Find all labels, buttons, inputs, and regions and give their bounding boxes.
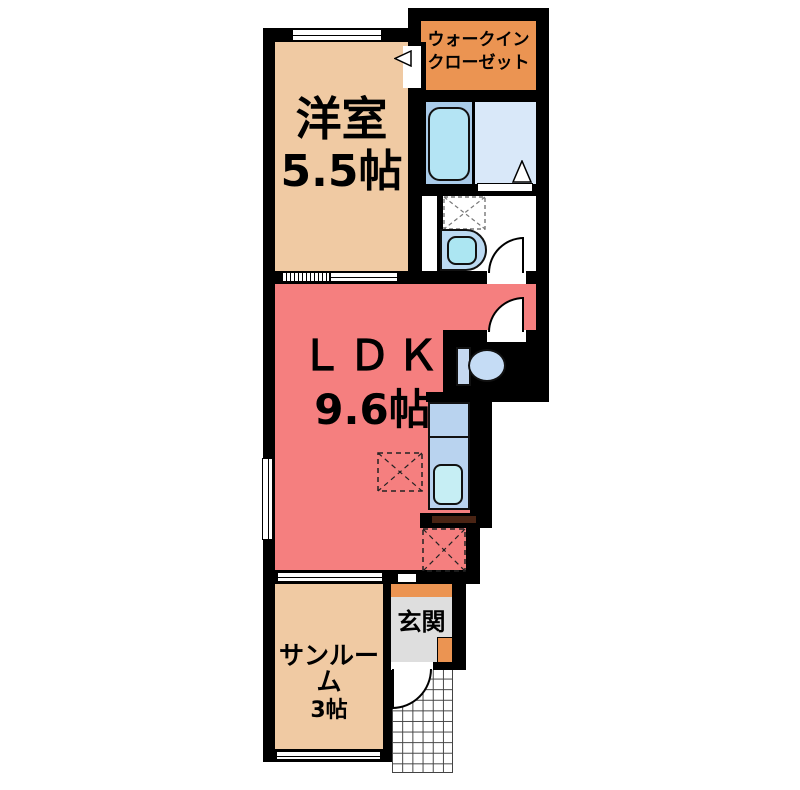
bathtub-icon xyxy=(428,107,470,181)
wall-opening xyxy=(398,574,416,582)
bath-sliding-door xyxy=(477,183,533,192)
window xyxy=(292,29,382,41)
window xyxy=(276,751,381,760)
bath-entry-arrow-icon xyxy=(512,160,532,183)
floor-plan: 洋室 5.5帖 ＬＤＫ 9.6帖 サンルーム 3帖 玄関 ウォークイン クローゼ… xyxy=(0,0,800,790)
walk-in-closet-name-line2: クローゼット xyxy=(421,52,536,75)
entrance-right-wall xyxy=(452,584,466,670)
room-western-name: 洋室 xyxy=(275,95,408,143)
window xyxy=(262,458,273,540)
sunroom-size: 3帖 xyxy=(273,699,385,722)
sliding-partition xyxy=(281,272,330,282)
closet-block-wall xyxy=(408,90,549,102)
sliding-partition xyxy=(330,272,398,282)
kitchen-counter-divider xyxy=(428,436,470,438)
kitchen-range-bar xyxy=(432,516,476,523)
walk-in-closet-name-line1: ウォークイン xyxy=(421,29,536,52)
refrigerator-space-icon xyxy=(422,528,466,572)
walk-in-closet-label: ウォークイン クローゼット xyxy=(421,29,536,75)
closet-block-wall xyxy=(408,8,549,21)
washbasin-bowl-icon xyxy=(447,236,477,265)
appliance-space-icon xyxy=(377,452,423,492)
room-western-label: 洋室 5.5帖 xyxy=(275,95,408,195)
sunroom-name: サンルーム xyxy=(273,643,385,696)
entrance-label: 玄関 xyxy=(391,610,452,635)
closet-entry-arrow-icon xyxy=(394,50,412,67)
entrance-name: 玄関 xyxy=(391,610,452,635)
room-ldk-label: ＬＤＫ 9.6帖 xyxy=(275,334,470,432)
washroom-pocket xyxy=(422,196,437,272)
entrance-step-strip xyxy=(391,584,452,597)
bath-divider-wall xyxy=(472,102,475,184)
shoe-cabinet xyxy=(437,637,452,662)
kitchen-sink-icon xyxy=(433,464,463,505)
kitchen-right-wall xyxy=(470,402,492,513)
sunroom-label: サンルーム 3帖 xyxy=(273,643,385,722)
toilet-bowl-icon xyxy=(468,349,506,382)
washing-machine-space-icon xyxy=(443,196,486,230)
room-western-size: 5.5帖 xyxy=(275,149,408,195)
room-ldk-size: 9.6帖 xyxy=(275,388,470,432)
window-sliding-door xyxy=(277,572,383,582)
room-ldk-name: ＬＤＫ xyxy=(275,334,470,378)
